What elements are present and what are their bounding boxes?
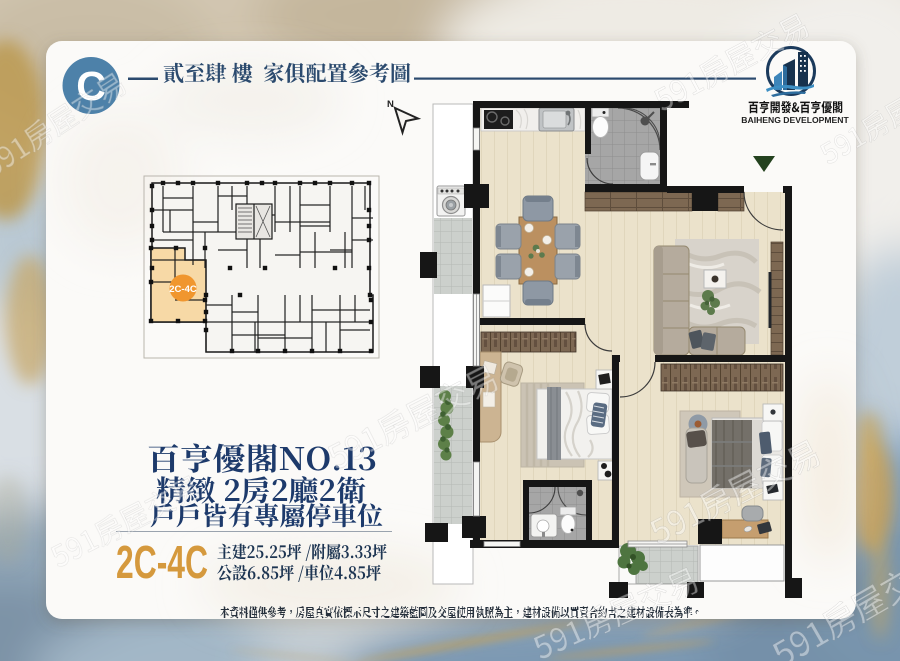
svg-text:BAIHENG DEVELOPMENT: BAIHENG DEVELOPMENT xyxy=(741,115,849,125)
svg-text:N: N xyxy=(387,99,394,110)
svg-text:2C-4C: 2C-4C xyxy=(169,284,197,295)
svg-text:2C-4C: 2C-4C xyxy=(116,536,208,588)
